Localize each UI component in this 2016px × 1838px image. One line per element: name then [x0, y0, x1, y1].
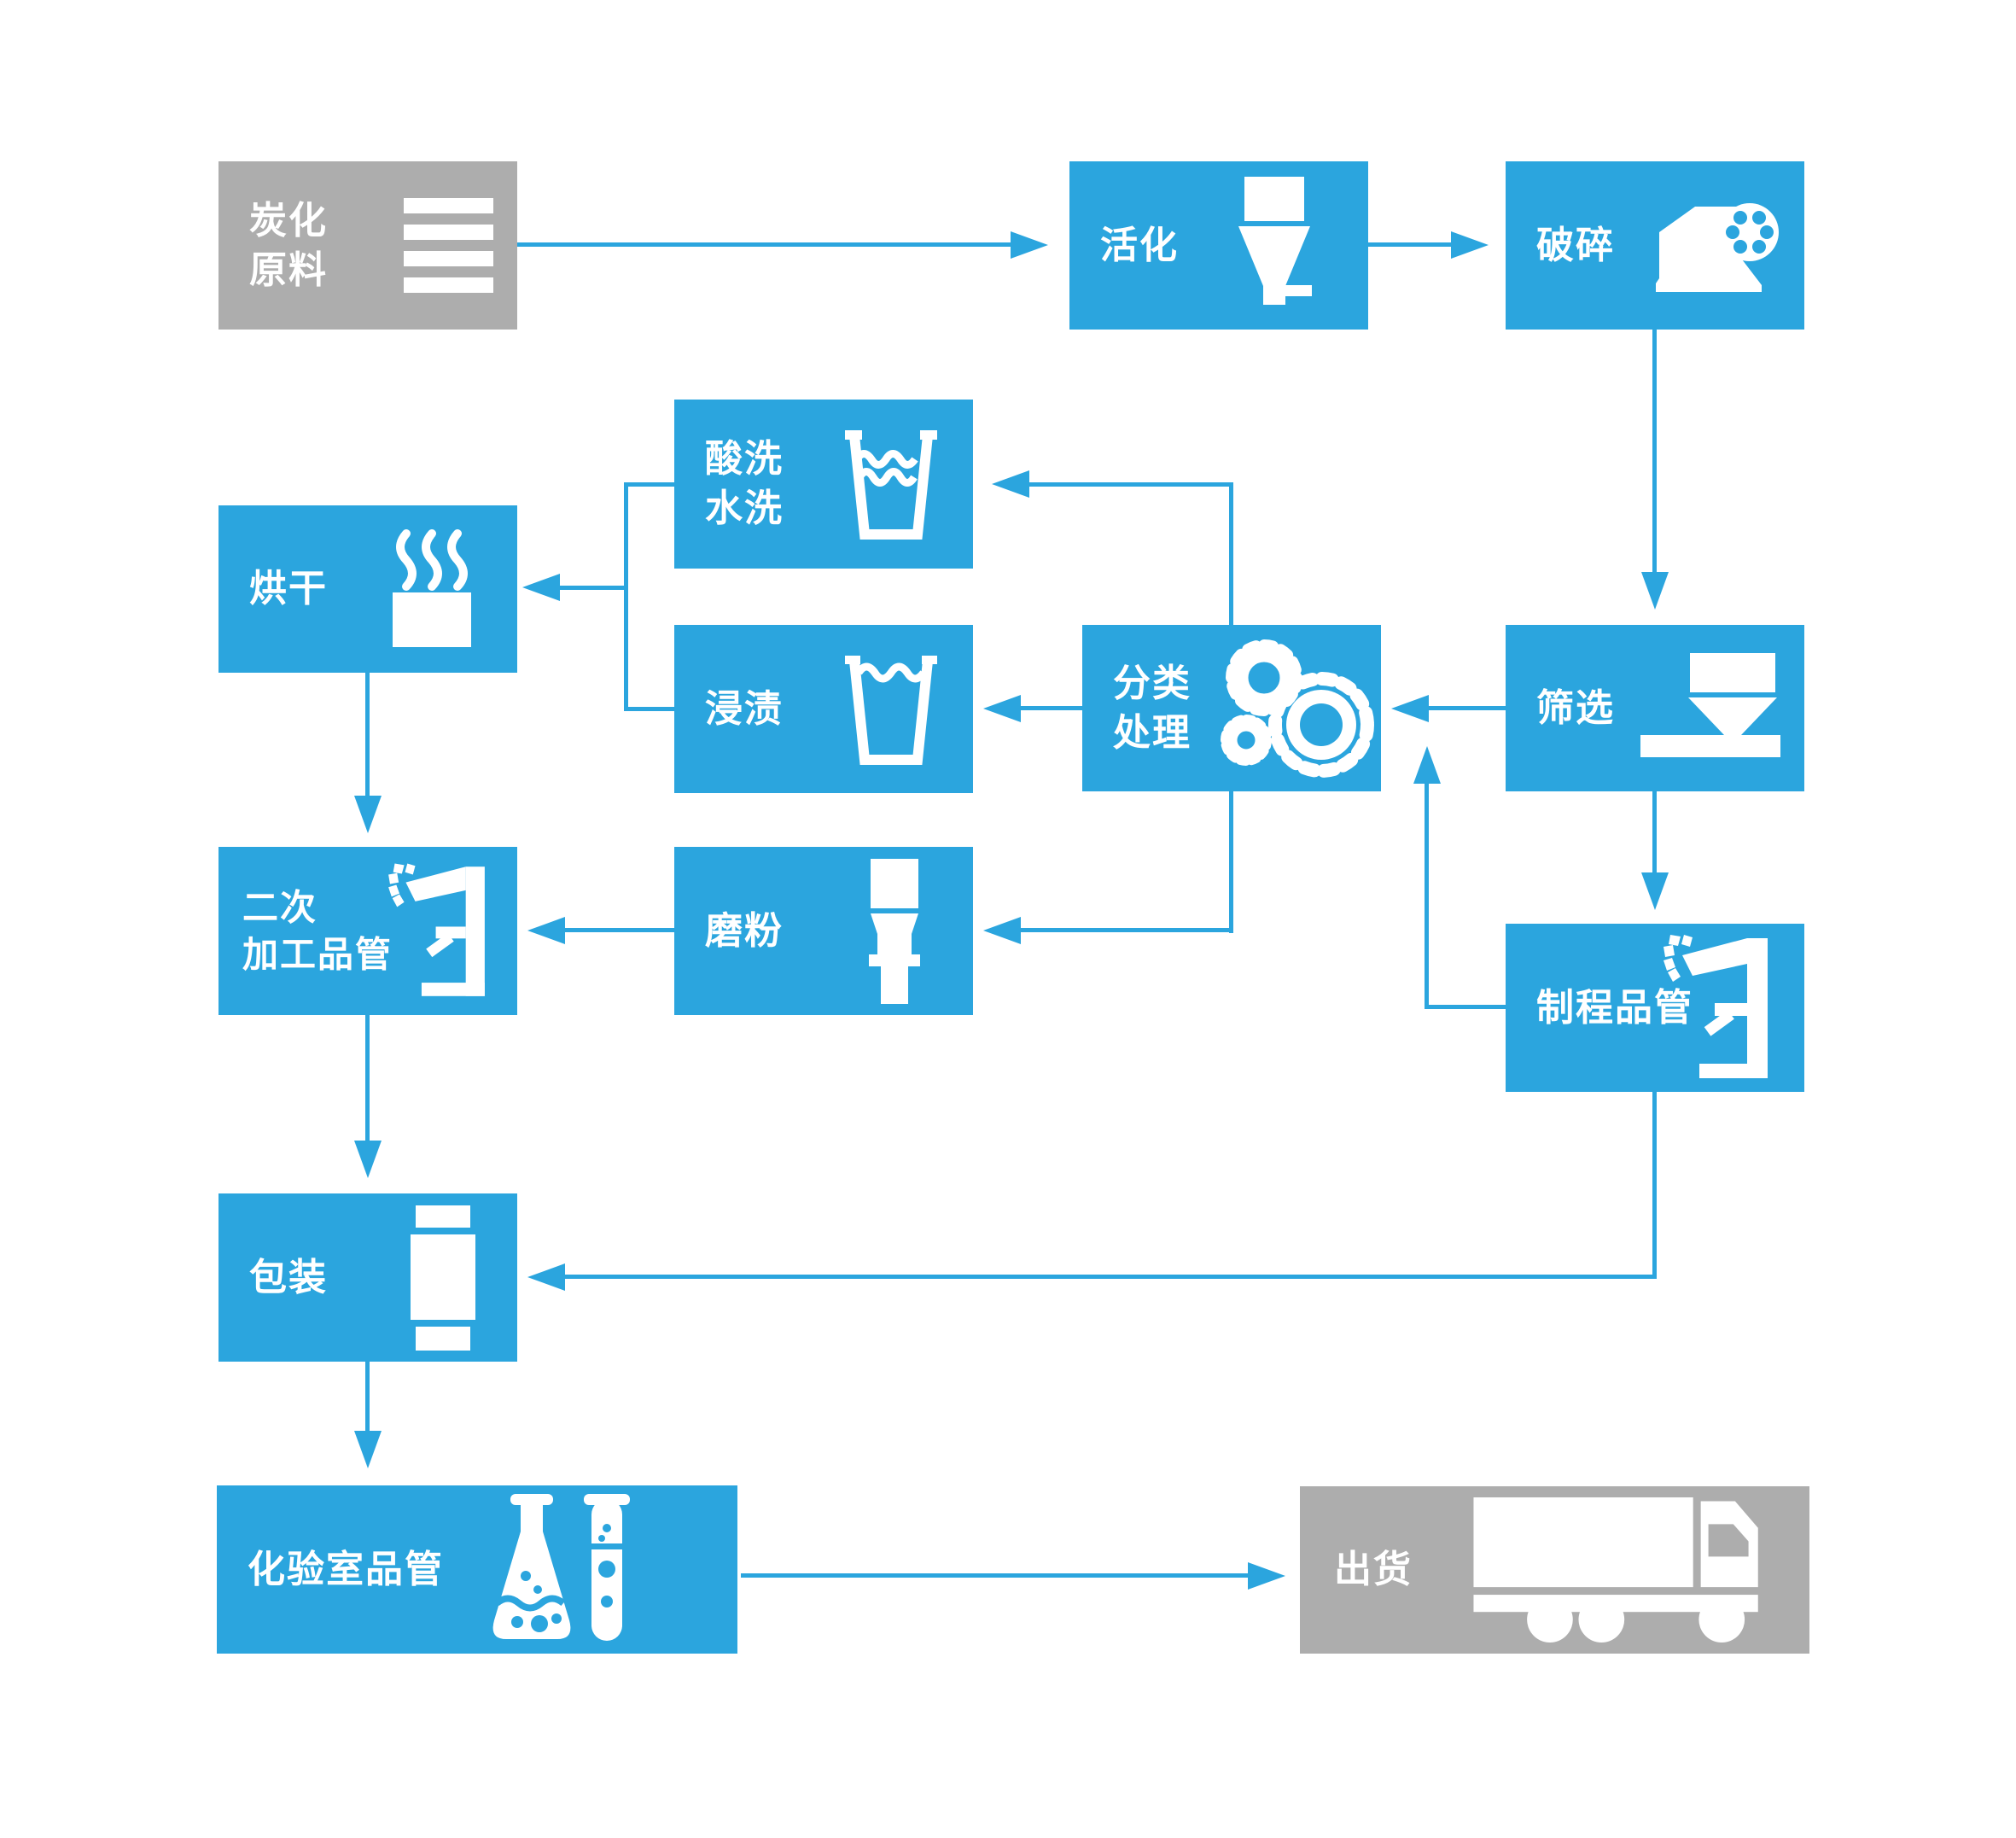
node-label: 分类 处理 [1113, 658, 1192, 757]
edge-labqc-shipping-arrowhead [1248, 1562, 1285, 1590]
lab-glassware-icon [481, 1494, 656, 1646]
edge-sorting-grinding-vline [1229, 791, 1233, 933]
edge-sorting-impregnation-arrowhead [983, 695, 1021, 722]
edge-packaging-labqc-line [365, 1362, 370, 1431]
node-label: 浸渍 [705, 684, 784, 733]
edge-grinding-secondaryqc-arrowhead [527, 917, 565, 944]
steam-cup-icon [381, 529, 483, 649]
edge-grinding-secondaryqc-line [565, 928, 674, 932]
hopper-icon [1640, 653, 1786, 764]
edge-sorting-wash-hline [1029, 482, 1233, 487]
list-icon [404, 198, 493, 294]
node-label: 出货 [1334, 1545, 1413, 1595]
microscope-icon [1663, 935, 1779, 1082]
package-icon [408, 1205, 478, 1351]
node-process-qc: 制程品管 [1506, 924, 1804, 1092]
washing-cup-icon [843, 429, 939, 540]
truck-icon [1473, 1497, 1789, 1643]
edge-activation-crushing-arrowhead [1451, 231, 1489, 259]
edge-packaging-labqc-arrowhead [354, 1431, 382, 1468]
node-laboratory-qc: 化验室品管 [217, 1485, 737, 1654]
node-crushing: 破碎 [1506, 161, 1804, 330]
node-activation: 活化 [1069, 161, 1368, 330]
edge-crushing-screening-arrowhead [1641, 572, 1669, 610]
edge-wash-merge-stub [624, 482, 674, 487]
funnel-icon [1235, 177, 1314, 315]
edge-labqc-shipping-line [741, 1573, 1248, 1578]
edge-secondaryqc-packaging-arrowhead [354, 1141, 382, 1178]
node-label: 破碎 [1536, 220, 1615, 270]
node-label: 酸洗 水洗 [705, 435, 784, 534]
node-impregnation: 浸渍 [674, 625, 973, 793]
edge-processqc-packaging-vline [1652, 1092, 1657, 1279]
edge-processqc-packaging-hline [565, 1275, 1657, 1279]
crusher-icon [1656, 200, 1784, 292]
flowchart-canvas: 炭化 原料 活化 破碎 酸洗 水洗 [0, 0, 2016, 1838]
node-drying: 烘干 [218, 505, 517, 673]
edge-processqc-packaging-arrowhead [527, 1263, 565, 1291]
edge-drying-secondaryqc-line [365, 673, 370, 796]
edge-sorting-wash-vline [1229, 482, 1233, 625]
edge-merge-drying-vline [624, 482, 628, 711]
edge-screening-processqc-line [1652, 791, 1657, 872]
node-packaging: 包装 [218, 1193, 517, 1362]
edge-crushing-screening-line [1652, 330, 1657, 572]
edge-processqc-sorting-hline [1425, 1005, 1506, 1009]
node-label: 二次 加工品管 [242, 884, 393, 978]
edge-drying-secondaryqc-arrowhead [354, 796, 382, 833]
edge-merge-drying-line [560, 586, 626, 590]
node-grinding: 磨粉 [674, 847, 973, 1015]
edge-merge-drying-arrowhead [522, 574, 560, 601]
node-label: 筛选 [1536, 683, 1615, 732]
node-acid-wash-water-wash: 酸洗 水洗 [674, 400, 973, 569]
microscope-icon [388, 863, 495, 999]
node-secondary-processing-qc: 二次 加工品管 [218, 847, 517, 1015]
node-label: 磨粉 [705, 906, 784, 955]
node-label: 烘干 [249, 564, 328, 614]
node-label: 活化 [1100, 220, 1179, 270]
edge-carbonize-activation-line [517, 242, 1011, 247]
node-screening: 筛选 [1506, 625, 1804, 791]
node-label: 炭化 原料 [249, 195, 328, 295]
edge-screening-sorting-arrowhead [1391, 695, 1429, 722]
edge-processqc-sorting-vline [1425, 784, 1429, 1007]
edge-screening-processqc-arrowhead [1641, 872, 1669, 910]
node-label: 包装 [249, 1252, 328, 1302]
edge-sorting-grinding-hline [1021, 928, 1233, 932]
mill-icon [860, 859, 929, 1004]
soaking-cup-icon [843, 654, 939, 765]
edge-carbonize-activation-arrowhead [1011, 231, 1048, 259]
edge-activation-crushing-line [1368, 242, 1451, 247]
edge-impregnation-merge-stub [624, 707, 674, 711]
node-sorting-treatment: 分类 处理 [1082, 625, 1381, 791]
edge-screening-sorting-line [1429, 706, 1506, 710]
node-label: 化验室品管 [248, 1544, 444, 1594]
edge-sorting-impregnation-line [1021, 706, 1082, 710]
node-carbonized-raw-material: 炭化 原料 [218, 161, 517, 330]
gears-icon [1215, 638, 1376, 779]
edge-sorting-grinding-arrowhead [983, 917, 1021, 944]
edge-sorting-wash-arrowhead [992, 470, 1029, 498]
edge-secondaryqc-packaging-line [365, 1015, 370, 1141]
node-shipping: 出货 [1300, 1486, 1809, 1654]
edge-processqc-sorting-arrowhead [1413, 746, 1441, 784]
